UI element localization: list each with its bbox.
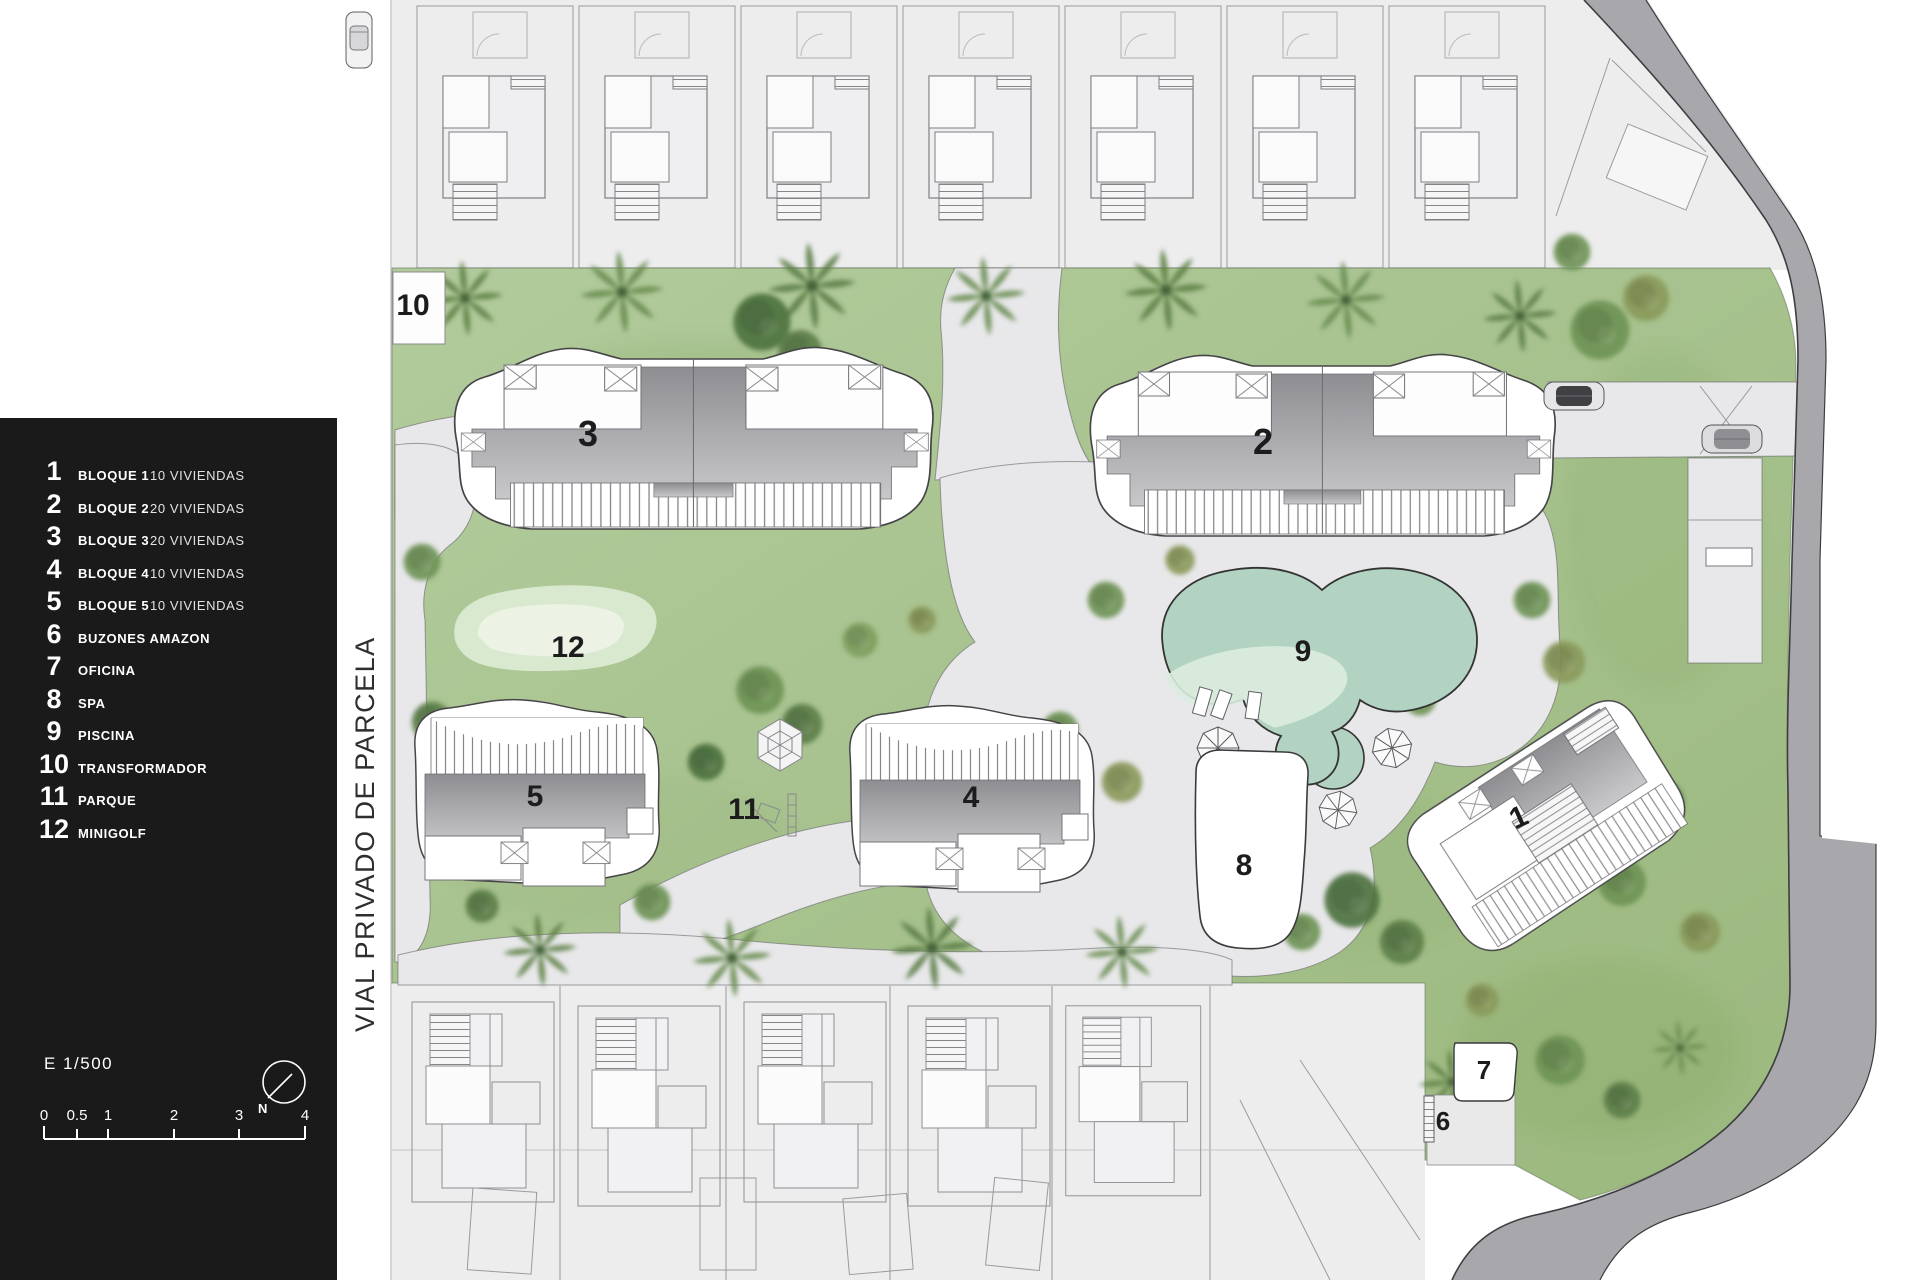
north-arrow-icon bbox=[263, 1061, 305, 1103]
site-plan-page: 1BLOQUE 110 VIVIENDAS 2BLOQUE 220 VIVIEN… bbox=[0, 0, 1920, 1280]
plan-marker-10: 10 bbox=[396, 291, 429, 321]
scale-bar-labels: 0 0.5 1 2 3 4 bbox=[40, 1107, 309, 1124]
plan-marker-7: 7 bbox=[1477, 1057, 1491, 1083]
scale-bar bbox=[44, 1126, 305, 1139]
svg-text:0.5: 0.5 bbox=[67, 1107, 88, 1124]
block-3 bbox=[455, 347, 933, 529]
car-icon bbox=[346, 12, 372, 68]
car-icon bbox=[1544, 382, 1604, 410]
svg-text:2: 2 bbox=[170, 1107, 178, 1124]
bottom-neighbour-strip bbox=[392, 983, 1425, 1280]
plan-marker-4: 4 bbox=[963, 783, 980, 813]
plan-marker-6: 6 bbox=[1436, 1108, 1450, 1134]
block-2 bbox=[1090, 354, 1555, 536]
plan-marker-3: 3 bbox=[578, 416, 598, 452]
plan-marker-2: 2 bbox=[1253, 424, 1273, 460]
plan-marker-12: 12 bbox=[551, 633, 584, 663]
plan-marker-5: 5 bbox=[527, 782, 544, 812]
svg-text:3: 3 bbox=[235, 1107, 243, 1124]
plan-marker-9: 9 bbox=[1295, 637, 1312, 667]
car-icon bbox=[1702, 425, 1762, 453]
top-neighbour-strip bbox=[392, 0, 1792, 270]
scalebar-and-north: N 0 0.5 1 2 3 4 bbox=[0, 418, 337, 1280]
svg-text:1: 1 bbox=[104, 1107, 112, 1124]
plan-marker-8: 8 bbox=[1236, 851, 1253, 881]
svg-text:4: 4 bbox=[301, 1107, 309, 1124]
north-label: N bbox=[258, 1101, 267, 1116]
plan-marker-11: 11 bbox=[728, 795, 760, 825]
legend-panel: 1BLOQUE 110 VIVIENDAS 2BLOQUE 220 VIVIEN… bbox=[0, 418, 337, 1280]
svg-text:0: 0 bbox=[40, 1107, 48, 1124]
street-label: VIAL PRIVADO DE PARCELA bbox=[350, 740, 381, 1032]
